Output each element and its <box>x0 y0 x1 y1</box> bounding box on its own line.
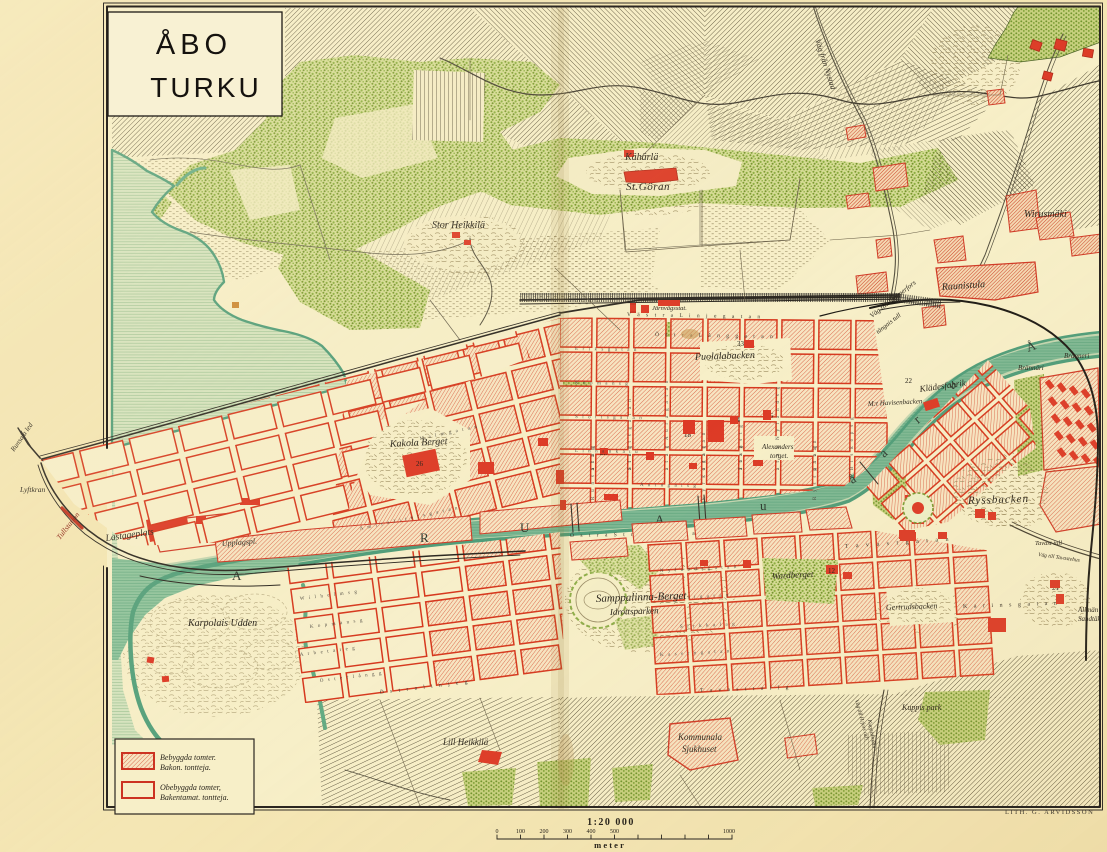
svg-text:Bebyggda tomter.: Bebyggda tomter. <box>160 753 216 762</box>
svg-text:Bakon. tontteja.: Bakon. tontteja. <box>160 763 211 772</box>
svg-text:400: 400 <box>587 829 596 835</box>
svg-text:Bakentamat. tontteja.: Bakentamat. tontteja. <box>160 793 229 802</box>
svg-text:Obebyggda tomter,: Obebyggda tomter, <box>160 783 221 792</box>
svg-text:0: 0 <box>496 829 499 835</box>
svg-text:500: 500 <box>610 829 619 835</box>
svg-text:TURKU: TURKU <box>150 72 261 103</box>
svg-text:1000: 1000 <box>723 829 735 835</box>
svg-text:LITH. G. ARVIDSSON: LITH. G. ARVIDSSON <box>1005 809 1094 816</box>
svg-text:100: 100 <box>516 829 525 835</box>
svg-text:ÅBO: ÅBO <box>156 28 232 61</box>
svg-text:m e t e r: m e t e r <box>594 840 624 850</box>
svg-text:1:20 000: 1:20 000 <box>587 817 635 828</box>
svg-text:200: 200 <box>540 829 549 835</box>
svg-text:300: 300 <box>563 829 572 835</box>
